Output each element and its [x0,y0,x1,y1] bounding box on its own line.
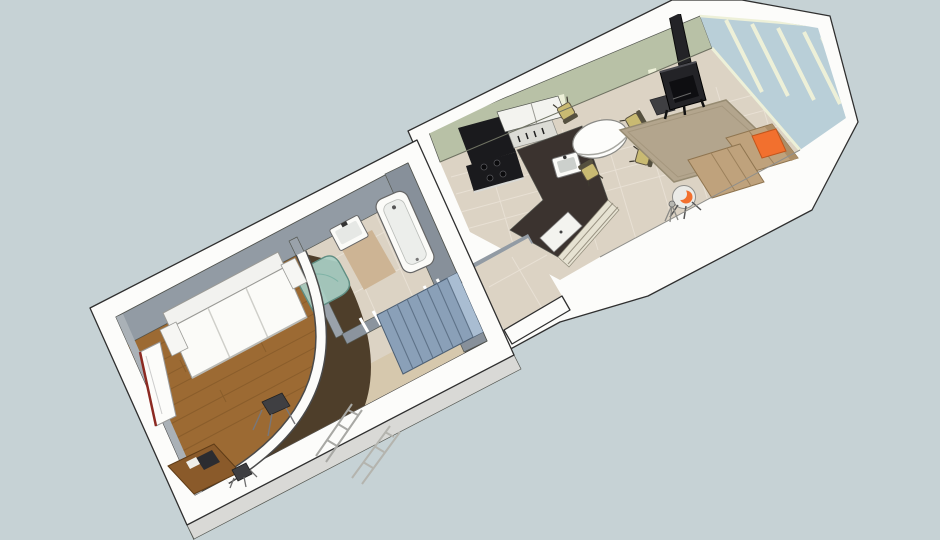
appliance-knob [560,231,563,234]
floorplan-render [0,0,940,540]
render-canvas [0,0,940,540]
